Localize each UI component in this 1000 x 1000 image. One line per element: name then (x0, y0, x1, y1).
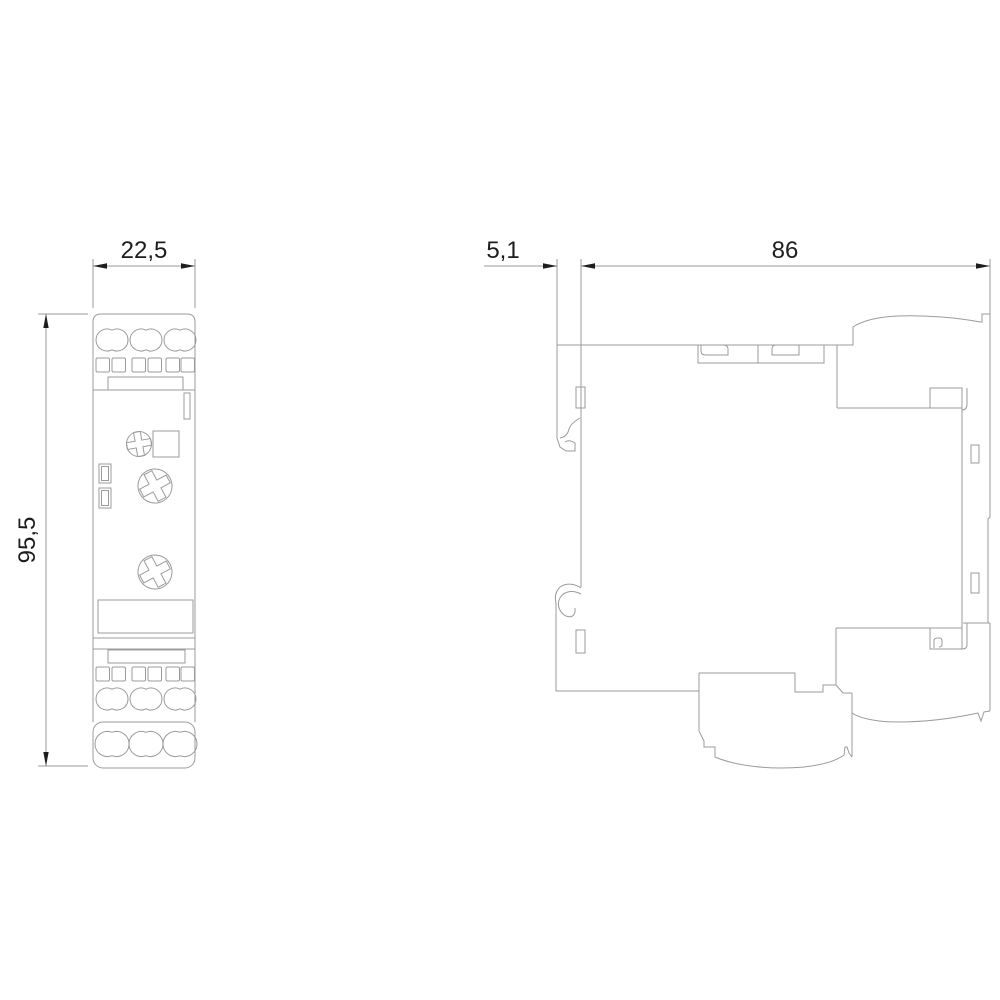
front-bezel-strip (962, 259, 990, 649)
lower-cover-bottom-curve (852, 711, 990, 722)
bezel-slot-lower (971, 573, 979, 593)
arrowhead-right (181, 263, 195, 268)
terminal-screw-port (166, 667, 180, 681)
din-clip-upper-hook (557, 438, 575, 451)
bottom-terminal-holes (95, 650, 197, 757)
terminal-hole (95, 732, 129, 757)
face-slot (184, 393, 190, 419)
din-clip-lower-hook (555, 584, 699, 691)
top-latch-detail (698, 345, 824, 363)
terminal-hole (164, 329, 196, 351)
led-indicators (99, 464, 111, 508)
latch-hook-right (772, 345, 799, 355)
upper-cover-latch-rect (930, 388, 962, 410)
dip-window (153, 431, 179, 457)
led-lens (102, 491, 109, 506)
terminal-screw-port (112, 358, 126, 372)
din-plate-slot-lower (576, 630, 585, 653)
screw-circle (125, 430, 154, 459)
dimension-clip-depth: 5,1 (484, 237, 557, 269)
terminal-screw-port (96, 358, 110, 372)
bottom-block-top-outline (699, 673, 852, 693)
terminal-hole (129, 732, 163, 757)
terminal-screw-port (181, 667, 195, 681)
terminal-screw-port (112, 667, 126, 681)
terminal-screw-port (181, 358, 195, 372)
dimension-width-label: 22,5 (121, 237, 168, 264)
dimension-width: 22,5 (93, 237, 195, 308)
terminal-screw-port (148, 358, 162, 372)
terminal-marking-plate (108, 650, 185, 663)
front-view (93, 314, 197, 768)
selector-screw-icon (125, 430, 154, 459)
latch-box (698, 345, 824, 363)
lower-cover-latch-hook (934, 638, 942, 648)
technical-drawing: 22,5 95,5 5,1 86 (0, 0, 1000, 1000)
terminal-screw-port (148, 667, 162, 681)
latch-hook-left (701, 345, 728, 355)
front-bottom-terminal-block (93, 722, 195, 768)
dimension-clip-depth-label: 5,1 (486, 237, 519, 264)
terminal-screw-port (96, 667, 110, 681)
arrowhead-left (581, 263, 595, 268)
pot-cross-slot (135, 552, 176, 593)
terminal-marking-plate (108, 377, 183, 390)
bezel-bottom-jog (962, 623, 967, 649)
terminal-screw-port (132, 358, 146, 372)
terminal-hole (130, 329, 162, 351)
label-holder (98, 600, 193, 633)
side-view (555, 259, 990, 768)
arrowhead-up (43, 314, 48, 328)
pot-circle (132, 549, 178, 595)
bezel-slot-upper (971, 445, 979, 463)
arrowhead-right (976, 263, 990, 268)
din-clip-lower-spring (558, 592, 581, 617)
rotary-potentiometer-upper (132, 463, 178, 509)
dimension-body-depth-label: 86 (772, 237, 799, 264)
terminal-screw-port (166, 358, 180, 372)
upper-cover-jog (962, 388, 967, 410)
led-lens (102, 467, 109, 481)
upper-cover-hump (837, 314, 990, 345)
drawing-canvas: 22,5 95,5 5,1 86 (0, 0, 1000, 1000)
dimension-height-label: 95,5 (14, 517, 41, 564)
arrowhead-left (93, 263, 107, 268)
bottom-terminal-block-side (699, 673, 852, 768)
din-clip-upper-spring (560, 418, 580, 438)
pot-circle (132, 463, 178, 509)
arrowhead-right (543, 263, 557, 268)
arrowhead-down (43, 752, 48, 766)
rotary-potentiometer-lower (132, 549, 178, 595)
terminal-hole (164, 688, 196, 710)
terminal-hole (130, 688, 162, 710)
dimension-body-depth: 86 (581, 237, 990, 269)
terminal-hole (96, 329, 128, 351)
terminal-hole (163, 732, 197, 757)
screw-cross-slot (125, 430, 153, 458)
pot-cross-slot (135, 466, 176, 507)
bottom-block-left-bottom (699, 673, 852, 768)
top-terminal-holes (96, 329, 196, 390)
dimension-height: 95,5 (14, 314, 88, 766)
terminal-screw-port (132, 667, 146, 681)
upper-terminal-cover (837, 314, 990, 410)
terminal-hole (96, 688, 128, 710)
